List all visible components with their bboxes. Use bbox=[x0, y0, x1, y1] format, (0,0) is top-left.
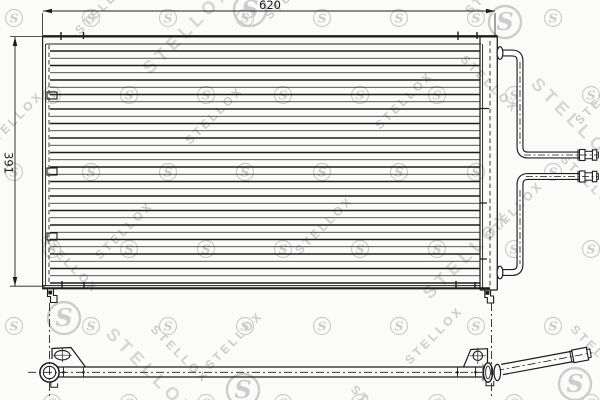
width-dimension-label: 620 bbox=[259, 0, 281, 12]
stellox-monogram-watermark: S bbox=[586, 242, 595, 257]
stellox-monogram-watermark: S bbox=[86, 319, 95, 334]
right-mounting-bracket bbox=[464, 348, 488, 367]
stellox-monogram-watermark-large: S bbox=[234, 375, 251, 400]
stellox-monogram-watermark: S bbox=[394, 319, 403, 334]
height-dim-arrow-top bbox=[13, 37, 18, 46]
condenser-diagram-svg: SSSSSSSSSSSSSSSSSSSSSSSSSSSSSSSSSSSSSSSS… bbox=[0, 0, 600, 400]
lower-port-flange bbox=[497, 266, 503, 279]
height-dimension: 391 bbox=[2, 37, 46, 287]
stellox-monogram-watermark: S bbox=[394, 11, 403, 26]
stellox-monogram-watermark: S bbox=[9, 11, 18, 26]
stellox-brand-watermark: STELLOX bbox=[0, 88, 46, 152]
width-dim-arrow-left bbox=[43, 9, 52, 14]
stellox-monogram-watermark: S bbox=[548, 319, 557, 334]
stellox-monogram-watermark-large: S bbox=[241, 0, 258, 24]
height-dimension-label: 391 bbox=[2, 152, 16, 174]
stellox-monogram-watermark: S bbox=[317, 319, 326, 334]
left-mounting-foot bbox=[48, 289, 58, 303]
core-fastener-ticks bbox=[61, 32, 477, 290]
stellox-brand-watermark: STELLOX bbox=[348, 382, 412, 400]
stellox-monogram-watermark: S bbox=[124, 396, 133, 400]
watermark-layer: SSSSSSSSSSSSSSSSSSSSSSSSSSSSSSSSSSSSSSSS… bbox=[0, 0, 600, 400]
stellox-brand-watermark: STELLOX bbox=[558, 152, 600, 216]
stellox-monogram-watermark: S bbox=[471, 319, 480, 334]
stellox-brand-watermark: STELLOX bbox=[38, 232, 102, 296]
stellox-brand-watermark: STELLOX bbox=[372, 68, 436, 132]
stellox-monogram-watermark-large: S bbox=[496, 7, 513, 36]
stellox-monogram-watermark: S bbox=[509, 396, 518, 400]
left-mounting-bracket bbox=[52, 348, 86, 368]
stellox-monogram-watermark: S bbox=[586, 396, 595, 400]
stellox-monogram-watermark: S bbox=[278, 396, 287, 400]
stellox-monogram-watermark: S bbox=[432, 396, 441, 400]
stellox-monogram-watermark-large: S bbox=[55, 303, 72, 332]
stellox-brand-watermark: STELLOX bbox=[72, 0, 136, 37]
stellox-monogram-watermark: S bbox=[47, 396, 56, 400]
height-dim-arrow-bottom bbox=[13, 277, 18, 286]
stellox-brand-watermark: STELLOX bbox=[402, 303, 466, 367]
upper-port-flange bbox=[497, 47, 503, 60]
stellox-monogram-watermark: S bbox=[163, 11, 172, 26]
stellox-brand-watermark: STELLOX bbox=[462, 0, 526, 17]
stellox-monogram-watermark: S bbox=[548, 11, 557, 26]
stellox-monogram-watermark-large: S bbox=[566, 369, 583, 398]
stellox-brand-watermark: STELLOX bbox=[202, 308, 266, 372]
condenser-technical-drawing: SSSSSSSSSSSSSSSSSSSSSSSSSSSSSSSSSSSSSSSS… bbox=[0, 0, 600, 400]
stellox-monogram-watermark: S bbox=[317, 11, 326, 26]
stellox-brand-watermark: STELLOX bbox=[458, 52, 522, 116]
right-mounting-foot bbox=[485, 290, 494, 303]
stellox-monogram-watermark: S bbox=[9, 319, 18, 334]
stellox-monogram-watermark: S bbox=[201, 396, 210, 400]
